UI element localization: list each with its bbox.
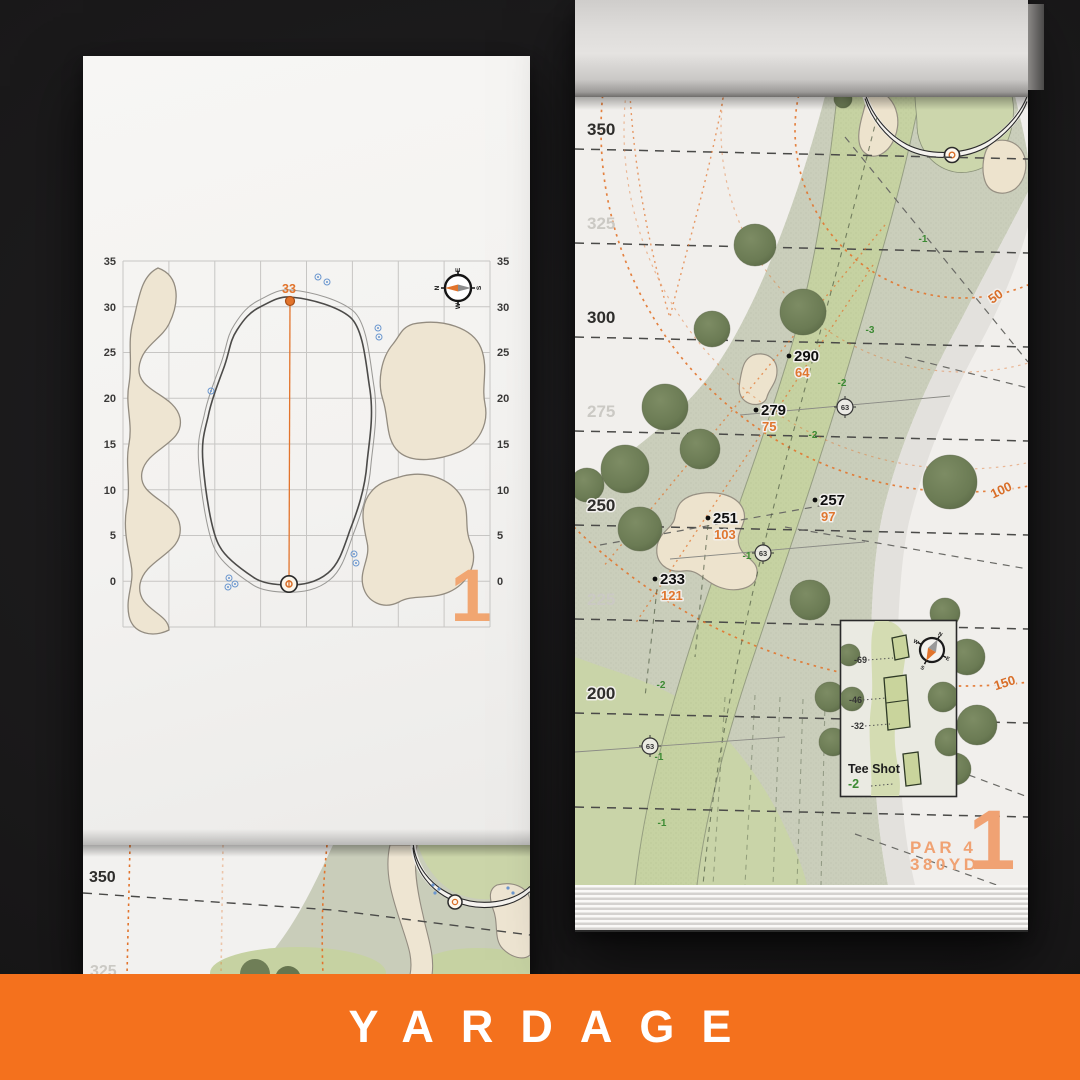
svg-text:5: 5: [110, 530, 116, 542]
compass-rose: N S E W: [434, 267, 483, 309]
hole-number: 1: [969, 793, 1016, 885]
hole-info: PAR 4 380YD 1: [910, 793, 1015, 885]
banner: YARDAGE: [0, 974, 1080, 1080]
svg-text:97: 97: [821, 509, 835, 524]
svg-text:63: 63: [841, 403, 849, 412]
svg-text:64: 64: [795, 365, 810, 380]
svg-text:103: 103: [714, 527, 736, 542]
flipped-page: [575, 0, 1028, 97]
svg-text:10: 10: [104, 485, 116, 497]
axis-labels-left: 3530 2520 1510 50: [104, 256, 116, 588]
svg-text:-1: -1: [743, 551, 752, 562]
svg-text:75: 75: [762, 419, 776, 434]
bunker-right-top: [380, 322, 486, 459]
compass-n: N: [434, 285, 441, 290]
banner-title: YARDAGE: [322, 1001, 759, 1053]
sprinkler-dots: [208, 274, 382, 590]
svg-text:121: 121: [661, 588, 683, 603]
flag-marker: [448, 895, 462, 909]
page-edge-tab: [1028, 4, 1044, 90]
svg-text:20: 20: [497, 393, 509, 405]
svg-text:257: 257: [820, 492, 845, 509]
compass-w: W: [455, 302, 462, 309]
tee-shot-inset: -69 -46 -32 Tee Shot -2 N E S W: [838, 620, 963, 796]
svg-text:25: 25: [104, 347, 116, 359]
svg-text:30: 30: [497, 302, 509, 314]
svg-text:20: 20: [104, 393, 116, 405]
svg-text:30: 30: [104, 302, 116, 314]
svg-text:100: 100: [988, 479, 1014, 502]
svg-text:-1: -1: [655, 752, 664, 763]
svg-text:251: 251: [713, 510, 738, 527]
svg-text:-1: -1: [919, 234, 928, 245]
tee-shot-elevation: -2: [848, 777, 859, 791]
svg-text:-2: -2: [838, 378, 847, 389]
bunkers: [125, 268, 486, 634]
svg-text:-46: -46: [849, 695, 862, 705]
svg-text:63: 63: [759, 549, 767, 558]
svg-text:-69: -69: [854, 655, 867, 665]
yardage-book-mockup: 33 3530 2520 1510 50: [0, 0, 1080, 1080]
page-stack-edge: [575, 885, 1028, 932]
svg-text:0: 0: [497, 576, 503, 588]
svg-text:25: 25: [497, 347, 509, 359]
svg-text:-2: -2: [809, 430, 818, 441]
hole-map-page: 63 63 63 -1 -3 -2 -2 -1 -2 -1 -1 350: [575, 97, 1028, 885]
hole-map: 63 63 63 -1 -3 -2 -2 -1 -2 -1 -1 350: [575, 97, 1028, 885]
hole-number: 1: [450, 554, 491, 637]
svg-text:15: 15: [104, 439, 116, 451]
svg-text:350: 350: [587, 120, 615, 139]
flag-marker: [945, 148, 960, 163]
tee-shot-title: Tee Shot: [848, 762, 901, 776]
fragment-map: 350 325: [83, 845, 530, 975]
svg-text:-3: -3: [866, 325, 875, 336]
pin-line: [289, 301, 290, 584]
svg-text:63: 63: [646, 742, 654, 751]
green-outline: [198, 290, 375, 593]
svg-text:-1: -1: [658, 818, 667, 829]
svg-text:279: 279: [761, 402, 786, 419]
green-detail-map: 33 3530 2520 1510 50: [83, 56, 530, 845]
svg-text:250: 250: [587, 496, 615, 515]
svg-text:225: 225: [587, 590, 615, 609]
svg-text:200: 200: [587, 684, 615, 703]
svg-text:325: 325: [587, 214, 615, 233]
pin-dot: [286, 297, 295, 306]
scale-label-350: 350: [89, 869, 116, 886]
green-detail-page: 33 3530 2520 1510 50: [83, 56, 530, 845]
flag-marker: [281, 576, 297, 592]
svg-text:275: 275: [587, 402, 615, 421]
svg-text:-2: -2: [657, 680, 666, 691]
right-booklet: 63 63 63 -1 -3 -2 -2 -1 -2 -1 -1 350: [575, 0, 1028, 930]
svg-text:150: 150: [992, 672, 1017, 693]
svg-text:300: 300: [587, 308, 615, 327]
next-page-fragment: 350 325: [83, 845, 530, 975]
axis-labels-right: 3530 2520 1510 50: [497, 256, 509, 588]
bunker-left-strip: [125, 268, 180, 634]
compass-s: S: [476, 285, 483, 290]
svg-text:35: 35: [497, 256, 509, 268]
svg-text:10: 10: [497, 485, 509, 497]
svg-text:-32: -32: [851, 721, 864, 731]
pin-distance-label: 33: [282, 282, 296, 296]
svg-text:35: 35: [104, 256, 116, 268]
svg-text:233: 233: [660, 571, 685, 588]
left-booklet: 33 3530 2520 1510 50: [83, 56, 530, 975]
svg-text:15: 15: [497, 439, 509, 451]
svg-text:290: 290: [794, 348, 819, 365]
svg-text:0: 0: [110, 576, 116, 588]
svg-text:5: 5: [497, 530, 503, 542]
compass-e: E: [455, 267, 462, 272]
